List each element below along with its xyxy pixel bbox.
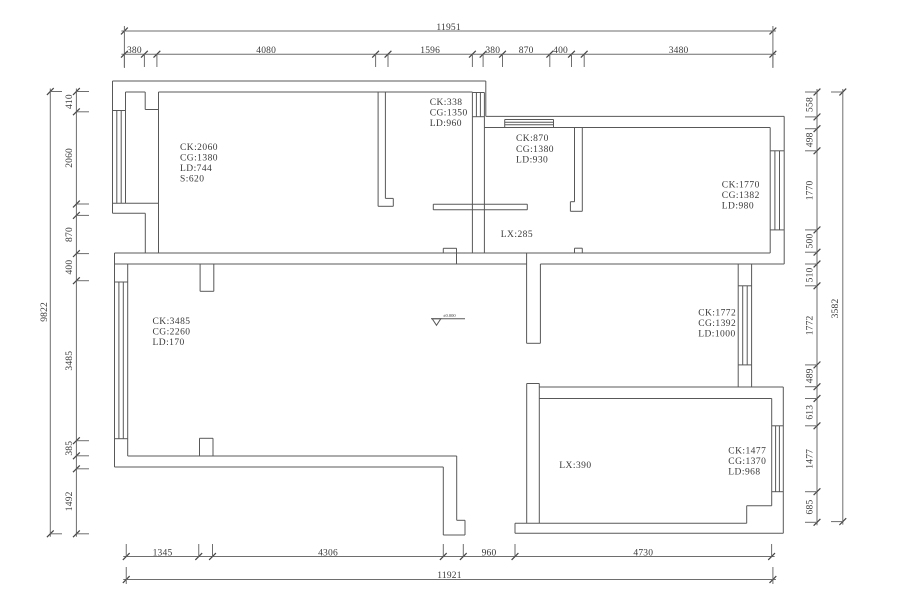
svg-text:558: 558 bbox=[805, 97, 815, 112]
svg-text:LX:390: LX:390 bbox=[559, 461, 591, 471]
svg-text:4730: 4730 bbox=[633, 548, 653, 558]
svg-text:385: 385 bbox=[65, 441, 75, 456]
svg-text:±0.000: ±0.000 bbox=[443, 313, 456, 318]
svg-text:CG:1382: CG:1382 bbox=[722, 191, 760, 201]
svg-text:960: 960 bbox=[482, 548, 497, 558]
svg-text:685: 685 bbox=[805, 500, 815, 515]
svg-text:S:620: S:620 bbox=[180, 175, 204, 185]
svg-text:CK:338: CK:338 bbox=[430, 98, 463, 108]
svg-text:CK:3485: CK:3485 bbox=[153, 317, 191, 327]
svg-text:380: 380 bbox=[127, 46, 142, 56]
svg-text:CG:2260: CG:2260 bbox=[153, 327, 191, 337]
svg-text:LD:170: LD:170 bbox=[153, 338, 185, 348]
svg-text:870: 870 bbox=[519, 46, 534, 56]
svg-text:1492: 1492 bbox=[65, 491, 75, 511]
svg-text:498: 498 bbox=[805, 132, 815, 147]
svg-text:4080: 4080 bbox=[256, 46, 276, 56]
svg-text:1345: 1345 bbox=[153, 548, 173, 558]
svg-text:LD:744: LD:744 bbox=[180, 164, 212, 174]
svg-text:LX:285: LX:285 bbox=[501, 230, 533, 240]
svg-text:510: 510 bbox=[805, 267, 815, 282]
svg-text:613: 613 bbox=[805, 405, 815, 420]
svg-text:CK:1772: CK:1772 bbox=[698, 308, 736, 318]
svg-text:1770: 1770 bbox=[805, 180, 815, 200]
svg-text:LD:960: LD:960 bbox=[430, 119, 462, 129]
svg-text:LD:968: LD:968 bbox=[728, 468, 760, 478]
svg-text:CG:1380: CG:1380 bbox=[516, 145, 554, 155]
svg-text:3485: 3485 bbox=[65, 351, 75, 371]
svg-text:1596: 1596 bbox=[420, 46, 440, 56]
svg-text:4306: 4306 bbox=[318, 548, 338, 558]
svg-text:CK:870: CK:870 bbox=[516, 134, 549, 144]
svg-text:CG:1370: CG:1370 bbox=[728, 457, 766, 467]
svg-text:2060: 2060 bbox=[65, 148, 75, 168]
svg-text:3582: 3582 bbox=[831, 299, 841, 319]
svg-text:LD:1000: LD:1000 bbox=[698, 330, 735, 340]
svg-text:9822: 9822 bbox=[40, 302, 50, 322]
svg-text:11921: 11921 bbox=[437, 571, 461, 581]
svg-text:380: 380 bbox=[485, 46, 500, 56]
svg-text:11951: 11951 bbox=[436, 23, 460, 33]
svg-text:CK:2060: CK:2060 bbox=[180, 143, 218, 153]
svg-text:CG:1380: CG:1380 bbox=[180, 154, 218, 164]
svg-text:CG:1350: CG:1350 bbox=[430, 108, 468, 118]
svg-text:CK:1477: CK:1477 bbox=[728, 447, 766, 457]
svg-text:500: 500 bbox=[805, 234, 815, 249]
svg-text:870: 870 bbox=[65, 227, 75, 242]
svg-text:CG:1392: CG:1392 bbox=[698, 319, 736, 329]
svg-text:400: 400 bbox=[65, 260, 75, 275]
svg-text:LD:930: LD:930 bbox=[516, 156, 548, 166]
svg-text:489: 489 bbox=[805, 368, 815, 383]
svg-text:3480: 3480 bbox=[669, 46, 689, 56]
svg-text:400: 400 bbox=[553, 46, 568, 56]
svg-text:1477: 1477 bbox=[805, 449, 815, 469]
svg-text:LD:980: LD:980 bbox=[722, 202, 754, 212]
svg-text:410: 410 bbox=[65, 94, 75, 109]
svg-text:1772: 1772 bbox=[805, 315, 815, 335]
svg-text:CK:1770: CK:1770 bbox=[722, 180, 760, 190]
